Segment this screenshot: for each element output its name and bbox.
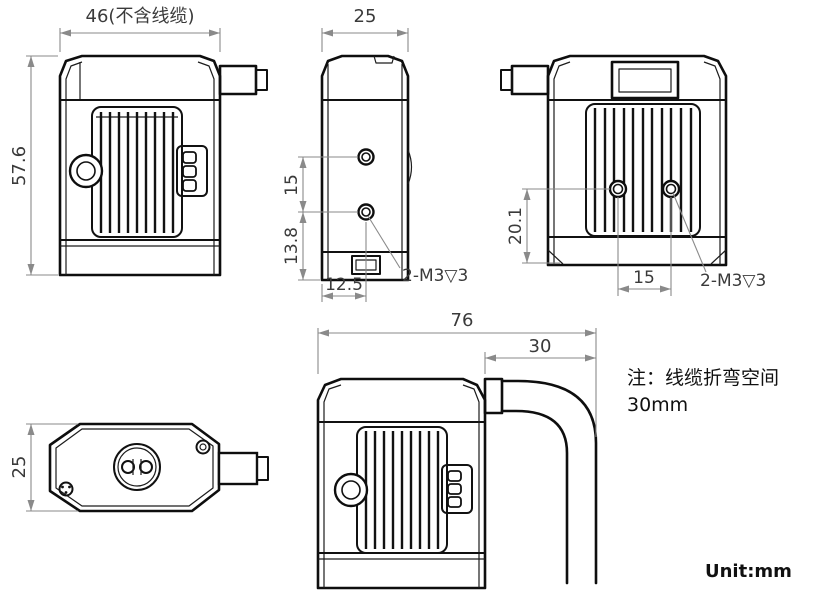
bent-cable xyxy=(485,379,596,583)
dim-top-view-depth: 25 xyxy=(9,424,78,511)
view-side-right xyxy=(501,56,726,265)
cable-bend-note-line1: 注：线缆折弯空间 xyxy=(627,367,779,389)
heatsink-fins xyxy=(366,431,438,549)
heatsink-fins xyxy=(595,108,691,232)
dim-body-height: 57.6 xyxy=(9,56,58,275)
cable-stub xyxy=(501,66,548,94)
dim-top-view-depth-label: 25 xyxy=(9,456,30,479)
dim-front-hole-to-bottom-label: 13.8 xyxy=(282,227,302,265)
indicator-hole xyxy=(60,483,73,496)
view-front xyxy=(322,56,412,280)
dim-body-height-label: 57.6 xyxy=(9,146,30,186)
unit-label: Unit:mm xyxy=(705,561,792,582)
dim-cable-bend-label: 30 xyxy=(529,336,552,357)
dim-front-hole-spacing-label: 15 xyxy=(282,174,302,196)
dim-overall-width: 76 xyxy=(318,310,596,437)
dim-back-thread-label: 2-M3▽3 xyxy=(700,271,766,291)
dim-body-width-label: 46(不含线缆) xyxy=(86,6,195,27)
lens-assembly xyxy=(114,444,160,490)
dimension-drawing-page: 46(不含线缆) 57.6 25 15 13.8 xyxy=(0,0,819,600)
cable-stub xyxy=(220,66,267,94)
dim-front-hole-offset-label: 12.5 xyxy=(325,275,363,295)
cable-stub xyxy=(219,453,268,484)
dim-cable-bend: 30 xyxy=(485,336,596,374)
view-side-left xyxy=(60,56,267,275)
dim-body-depth: 25 xyxy=(322,6,408,52)
dim-body-width: 46(不含线缆) xyxy=(60,6,220,52)
view-top xyxy=(50,424,268,511)
dim-back-hole-spacing-label: 15 xyxy=(633,268,655,288)
view-side-cable-bent xyxy=(318,379,596,588)
dim-back-hole-to-bottom-label: 20.1 xyxy=(506,207,526,245)
dimension-drawing-canvas: 46(不含线缆) 57.6 25 15 13.8 xyxy=(0,0,819,600)
aimer-hole xyxy=(197,441,210,454)
dim-overall-width-label: 76 xyxy=(451,310,474,331)
heatsink-fins xyxy=(101,112,173,233)
dim-front-thread-label: 2-M3▽3 xyxy=(402,266,468,286)
dim-body-depth-label: 25 xyxy=(354,6,377,27)
cable-bend-note-line2: 30mm xyxy=(627,394,688,416)
